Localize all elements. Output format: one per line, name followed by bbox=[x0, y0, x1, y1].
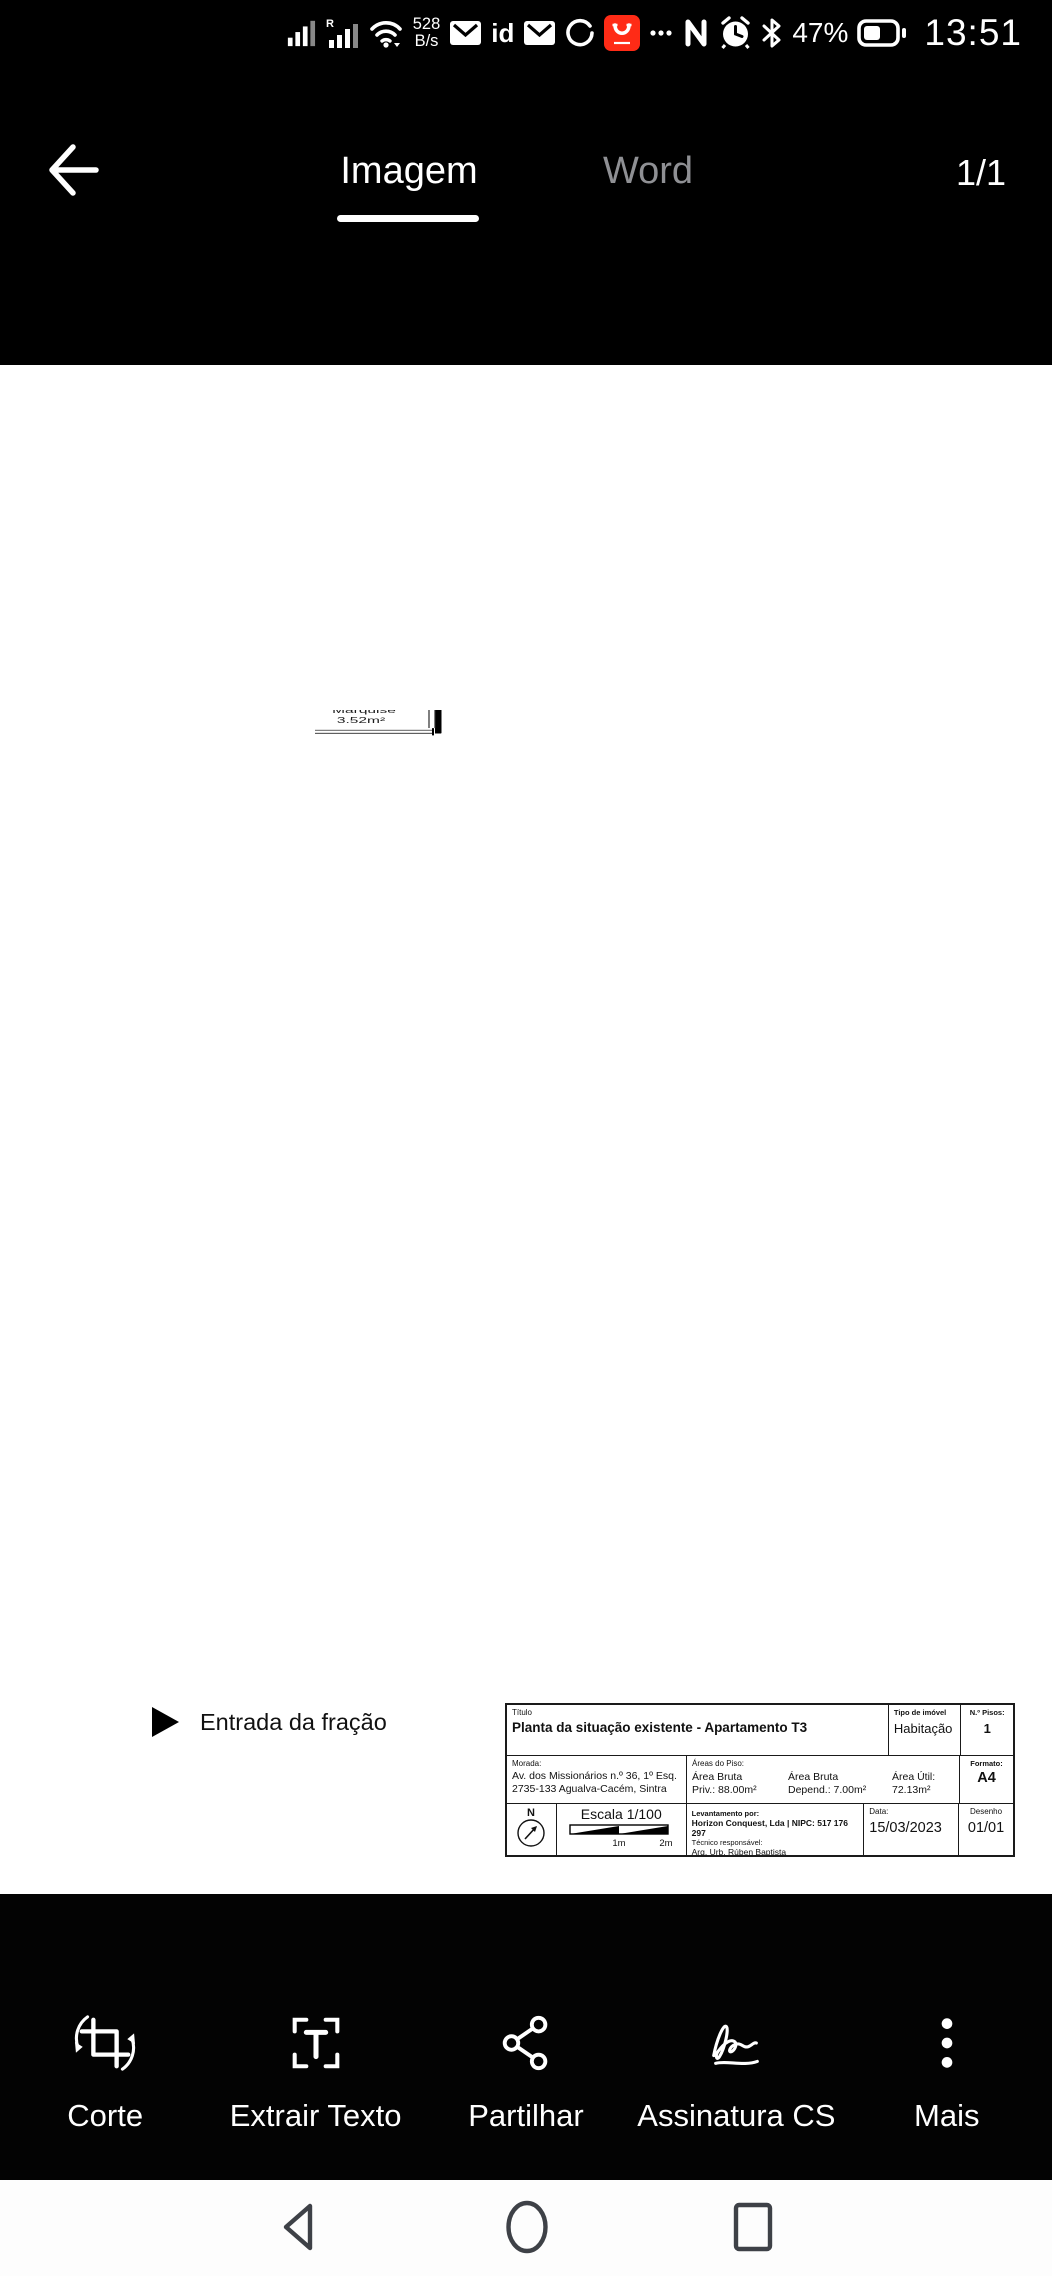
morada-line2: 2735-133 Agualva-Cacém, Sintra bbox=[512, 1783, 681, 1796]
battery-percent: 47% bbox=[792, 17, 848, 49]
tecnico-label: Técnico responsável: bbox=[692, 1838, 859, 1847]
data-value: 15/03/2023 bbox=[869, 1820, 953, 1836]
tab-imagem[interactable]: Imagem bbox=[331, 150, 487, 193]
title-block: Título Planta da situação existente - Ap… bbox=[505, 1703, 1015, 1857]
formato-label: Formato: bbox=[965, 1759, 1008, 1768]
document-page[interactable]: Quarto 10.35m² Quarto 11.83m² I.S. 2.13m… bbox=[0, 365, 1052, 1894]
area-bruta-priv-label: Área Bruta bbox=[692, 1771, 788, 1784]
floor-plan-image[interactable]: Quarto 10.35m² Quarto 11.83m² I.S. 2.13m… bbox=[315, 710, 760, 1470]
area-bruta-dep-label: Área Bruta bbox=[788, 1771, 892, 1784]
signature-button[interactable]: Assinatura CS bbox=[631, 1894, 841, 2180]
room-area: 3.52m² bbox=[337, 716, 385, 725]
levantamento-company: Horizon Conquest, Lda | NIPC: 517 176 29… bbox=[692, 1818, 859, 1838]
network-speed: 528 B/s bbox=[413, 16, 441, 50]
extract-text-icon bbox=[285, 2012, 347, 2074]
desenho-label: Desenho bbox=[964, 1807, 1008, 1816]
north-label: N bbox=[527, 1807, 535, 1819]
active-tab-underline bbox=[337, 215, 479, 222]
signal-icon bbox=[286, 17, 316, 49]
levantamento-label: Levantamento por: bbox=[692, 1809, 859, 1818]
n-pisos-value: 1 bbox=[966, 1721, 1008, 1736]
areas-piso-label: Áreas do Piso: bbox=[692, 1759, 954, 1768]
extract-text-label: Extrair Texto bbox=[230, 2098, 402, 2134]
signature-label: Assinatura CS bbox=[637, 2098, 835, 2134]
drawing-title: Planta da situação existente - Apartamen… bbox=[512, 1720, 883, 1735]
titulo-label: Título bbox=[512, 1708, 883, 1717]
tipo-imovel-label: Tipo de imóvel bbox=[894, 1708, 955, 1717]
morada-line1: Av. dos Missionários n.º 36, 1º Esq. bbox=[512, 1770, 681, 1783]
sync-icon bbox=[565, 18, 595, 48]
overflow-dots-icon bbox=[649, 28, 673, 38]
crop-label: Corte bbox=[67, 2098, 143, 2134]
tab-word[interactable]: Word bbox=[598, 150, 698, 193]
data-label: Data: bbox=[869, 1807, 953, 1816]
tipo-imovel-value: Habitação bbox=[894, 1721, 955, 1736]
morada-label: Morada: bbox=[512, 1759, 681, 1768]
aliexpress-icon bbox=[604, 15, 640, 51]
signature-icon bbox=[705, 2012, 767, 2074]
android-nav-bar bbox=[0, 2180, 1052, 2276]
area-bruta-priv-value: Priv.: 88.00m² bbox=[692, 1784, 788, 1797]
share-button[interactable]: Partilhar bbox=[421, 1894, 631, 2180]
tecnico-nome: Arq. Urb. Rúben Baptista bbox=[692, 1847, 859, 1855]
back-arrow-icon[interactable] bbox=[44, 142, 102, 198]
entrance-arrow-icon bbox=[152, 1706, 180, 1738]
scale-label: Escala 1/100 bbox=[562, 1806, 681, 1822]
back-icon[interactable] bbox=[277, 2202, 321, 2252]
share-icon bbox=[495, 2012, 557, 2074]
recents-icon[interactable] bbox=[732, 2202, 774, 2252]
wifi-icon bbox=[368, 16, 404, 50]
entrance-legend-label: Entrada da fração bbox=[200, 1709, 387, 1736]
north-arrow-icon: N bbox=[511, 1805, 551, 1851]
scale-tick-1: 1m bbox=[613, 1838, 626, 1848]
scale-tick-2: 2m bbox=[660, 1838, 673, 1848]
crop-button[interactable]: Corte bbox=[0, 1894, 210, 2180]
mail-icon bbox=[449, 19, 482, 47]
area-util-label: Área Útil: bbox=[892, 1771, 954, 1784]
bluetooth-icon bbox=[761, 16, 783, 50]
extract-text-button[interactable]: Extrair Texto bbox=[210, 1894, 420, 2180]
scale-bar: 1m 2m bbox=[566, 1822, 676, 1848]
id-icon: id bbox=[491, 20, 514, 46]
more-button[interactable]: Mais bbox=[842, 1894, 1052, 2180]
battery-icon bbox=[857, 18, 907, 48]
room-label: Marquise bbox=[332, 710, 396, 715]
svg-text:R: R bbox=[326, 18, 334, 30]
area-bruta-dep-value: Depend.: 7.00m² bbox=[788, 1784, 892, 1797]
nfc-icon bbox=[682, 17, 710, 49]
more-icon bbox=[916, 2012, 978, 2074]
status-bar: R 528 B/s id bbox=[0, 0, 1052, 66]
mail-icon bbox=[523, 19, 556, 47]
page-indicator: 1/1 bbox=[956, 152, 1020, 194]
alarm-icon bbox=[719, 16, 752, 50]
share-label: Partilhar bbox=[468, 2098, 583, 2134]
more-label: Mais bbox=[914, 2098, 979, 2134]
n-pisos-label: N.º Pisos: bbox=[966, 1708, 1008, 1717]
area-util-value: 72.13m² bbox=[892, 1784, 954, 1797]
formato-value: A4 bbox=[965, 1770, 1008, 1786]
roaming-signal-icon: R bbox=[325, 16, 359, 50]
home-icon[interactable] bbox=[504, 2198, 550, 2256]
bottom-toolbar: Corte Extrair Texto Partilhar Assinatu bbox=[0, 1894, 1052, 2180]
phone-screen: R 528 B/s id bbox=[0, 0, 1052, 2276]
app-header: Imagem Word 1/1 bbox=[0, 66, 1052, 365]
clock-time: 13:51 bbox=[924, 12, 1022, 54]
entrance-legend: Entrada da fração bbox=[152, 1706, 387, 1738]
desenho-value: 01/01 bbox=[964, 1820, 1008, 1836]
crop-icon bbox=[74, 2012, 136, 2074]
